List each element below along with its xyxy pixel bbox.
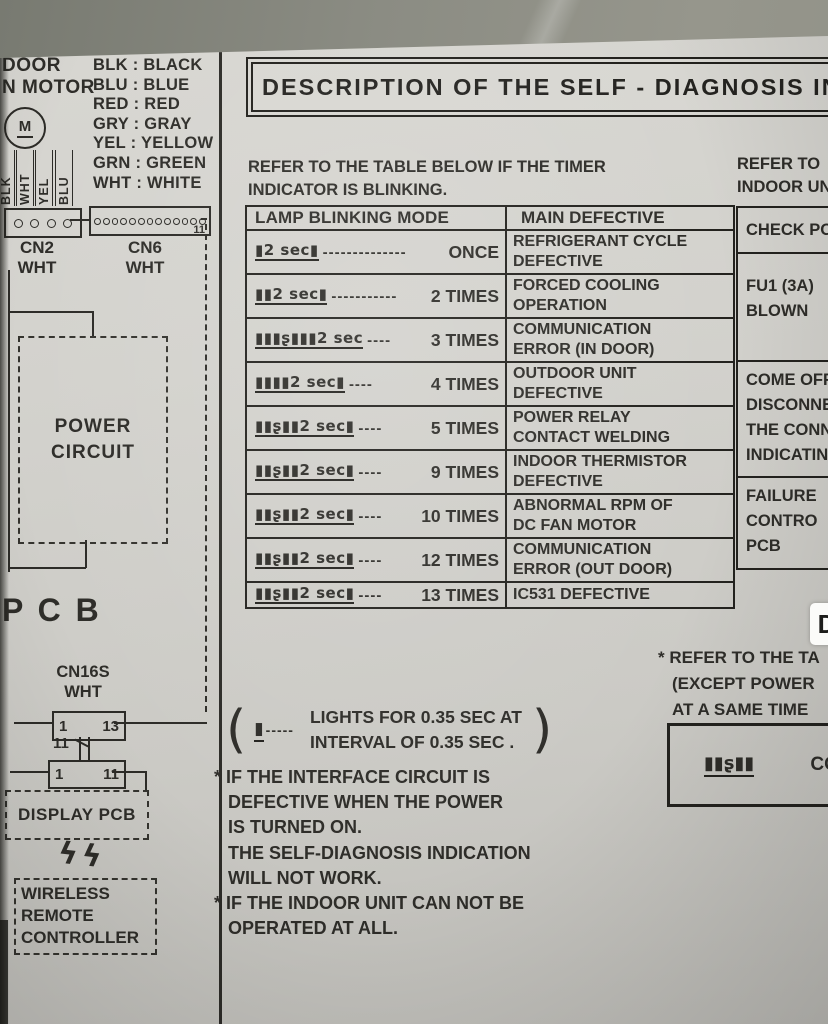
wire-line (14, 722, 52, 724)
defect-cell: COMMUNICATIONERROR (IN DOOR) (507, 319, 733, 361)
check-row: COME OFF DISCONNE THE CONN INDICATIN (738, 360, 828, 476)
cn6-connector: 11 (89, 206, 211, 236)
wire-color-legend: BLK : BLACK BLU : BLUE RED : RED GRY : G… (93, 56, 213, 193)
defect-cell: INDOOR THERMISTORDEFECTIVE (507, 451, 733, 493)
paren-open: ( (226, 698, 246, 762)
pin-11-label: 11 (53, 735, 69, 752)
note-line: IS TURNED ON. (214, 815, 531, 840)
col-header-lamp-blinking-mode: LAMP BLINKING MODE (247, 207, 507, 229)
blink-count: 4 TIMES (431, 374, 499, 395)
wire-line (201, 218, 207, 220)
connector-pin (155, 218, 162, 225)
wire-label-yel: YEL (35, 150, 53, 206)
wire-line (8, 311, 93, 313)
blink-count: 12 TIMES (421, 550, 499, 571)
defect-cell: ABNORMAL RPM OFDC FAN MOTOR (507, 495, 733, 537)
cn2-label: CN2 WHT (4, 238, 70, 278)
connector-pin (173, 218, 180, 225)
check-point-table: CHECK PO FU1 (3A) BLOWN COME OFF DISCONN… (736, 206, 828, 570)
wire-line (145, 771, 147, 792)
display-connector: 1 11 (48, 760, 126, 789)
right-footnote: * REFER TO THE TA (EXCEPT POWER AT A SAM… (658, 645, 820, 723)
table-row: ▮▮▮ʂ▮▮▮2 sec----3 TIMES COMMUNICATIONERR… (247, 317, 733, 361)
connector-pin (120, 218, 127, 225)
note-line: * IF THE INTERFACE CIRCUIT IS (214, 765, 531, 790)
blink-pattern: ▮▮▮▮2 sec▮ (255, 375, 345, 393)
connector-pin (147, 218, 154, 225)
defect-cell: FORCED COOLINGOPERATION (507, 275, 733, 317)
table-row: ▮▮2 sec▮-----------2 TIMES FORCED COOLIN… (247, 273, 733, 317)
fan-motor-label: DOOR N MOTOR (2, 55, 95, 99)
blink-count: 2 TIMES (431, 286, 499, 307)
note-line: OPERATED AT ALL. (214, 916, 531, 941)
legend-line: GRY : GRAY (93, 115, 213, 135)
wire-line (112, 771, 147, 773)
blink-symbol: ▮ (254, 719, 263, 742)
check-row: FU1 (3A) BLOWN (738, 252, 828, 360)
connector-pin (129, 218, 136, 225)
blink-count: 9 TIMES (431, 462, 499, 483)
legend-line: YEL : YELLOW (93, 134, 213, 154)
table-row: ▮▮ʂ▮▮2 sec▮----10 TIMES ABNORMAL RPM OFD… (247, 493, 733, 537)
connector-pin (138, 218, 145, 225)
overlay-badge: D (810, 603, 828, 645)
table-header-row: LAMP BLINKING MODE MAIN DEFECTIVE (247, 207, 733, 229)
wireless-signal-icon: ϟϟ (56, 836, 107, 876)
page-title: DESCRIPTION OF THE SELF - DIAGNOSIS IN (262, 74, 828, 101)
blink-pattern: ▮▮ʂ▮▮ (704, 753, 754, 777)
note-line: * IF THE INDOOR UNIT CAN NOT BE (214, 891, 531, 916)
note-line: THE SELF-DIAGNOSIS INDICATION (214, 841, 531, 866)
note-line: DEFECTIVE WHEN THE POWER (214, 790, 531, 815)
blink-count: 5 TIMES (431, 418, 499, 439)
wire-line (88, 737, 90, 761)
defect-cell: REFRIGERANT CYCLEDEFECTIVE (507, 231, 733, 273)
connector-pin (182, 218, 189, 225)
wire-label-blu: BLU (55, 150, 73, 206)
cn6-label: CN6 WHT (89, 238, 201, 278)
blink-count: 13 TIMES (421, 585, 499, 606)
blink-pattern: ▮▮ʂ▮▮2 sec▮ (255, 507, 354, 525)
wire-line (79, 737, 81, 761)
wire-line (114, 722, 207, 724)
photo-of-self-diagnosis-label: DOOR N MOTOR BLK : BLACK BLU : BLUE RED … (0, 0, 828, 1024)
footnotes: * IF THE INTERFACE CIRCUIT IS DEFECTIVE … (214, 765, 531, 941)
cn2-connector (4, 208, 82, 238)
wire-line (70, 219, 89, 221)
connector-pin (94, 218, 101, 225)
defect-cell: COMMUNICATIONERROR (OUT DOOR) (507, 539, 733, 581)
connector-pin (47, 219, 56, 228)
wire-label-wht: WHT (16, 150, 34, 206)
blink-pattern: ▮▮ʂ▮▮2 sec▮ (255, 419, 354, 437)
legend-line: RED : RED (93, 95, 213, 115)
blink-pattern: ▮2 sec▮ (255, 243, 319, 261)
blink-timing-legend: ( ▮ ----- LIGHTS FOR 0.35 SEC AT INTERVA… (226, 698, 552, 762)
legend-line: BLK : BLACK (93, 56, 213, 76)
blink-pattern: ▮▮ʂ▮▮2 sec▮ (255, 586, 354, 604)
refer-indoor-unit-text: REFER TO INDOOR UN (737, 153, 828, 199)
right-pattern-box: ▮▮ʂ▮▮ CO (667, 723, 828, 807)
table-row: ▮▮ʂ▮▮2 sec▮----12 TIMES COMMUNICATIONERR… (247, 537, 733, 581)
motor-icon: M (4, 107, 46, 149)
check-row: FAILURE CONTRO PCB (738, 476, 828, 568)
blink-pattern: ▮▮2 sec▮ (255, 287, 327, 305)
table-row: ▮▮▮▮2 sec▮----4 TIMES OUTDOOR UNITDEFECT… (247, 361, 733, 405)
wire-line (8, 567, 86, 569)
intro-text: REFER TO THE TABLE BELOW IF THE TIMER IN… (248, 156, 606, 202)
connector-pin (103, 218, 110, 225)
blink-code-table: LAMP BLINKING MODE MAIN DEFECTIVE ▮2 sec… (245, 205, 735, 609)
defect-cell: OUTDOOR UNITDEFECTIVE (507, 363, 733, 405)
paper-edge-shadow (0, 920, 8, 1024)
blink-pattern: ▮▮▮ʂ▮▮▮2 sec (255, 331, 363, 349)
table-row: ▮▮ʂ▮▮2 sec▮----9 TIMES INDOOR THERMISTOR… (247, 449, 733, 493)
legend-line: GRN : GREEN (93, 154, 213, 174)
paren-close: ) (532, 698, 552, 762)
legend-line: WHT : WHITE (93, 174, 213, 194)
table-row: ▮2 sec▮--------------ONCE REFRIGERANT CY… (247, 229, 733, 273)
blink-count: ONCE (448, 242, 499, 263)
defect-cell: POWER RELAYCONTACT WELDING (507, 407, 733, 449)
cn16s-label: CN16S WHT (48, 662, 118, 702)
blink-pattern: ▮▮ʂ▮▮2 sec▮ (255, 463, 354, 481)
connector-pin (14, 219, 23, 228)
note-line: WILL NOT WORK. (214, 866, 531, 891)
blink-count: 3 TIMES (431, 330, 499, 351)
label-paper: DOOR N MOTOR BLK : BLACK BLU : BLUE RED … (0, 0, 828, 1024)
title-box: DESCRIPTION OF THE SELF - DIAGNOSIS IN (246, 57, 828, 117)
power-circuit-box: POWER CIRCUIT (18, 336, 168, 544)
legend-line: BLU : BLUE (93, 76, 213, 96)
defect-cell: IC531 DEFECTIVE (507, 583, 733, 607)
connector-pin (164, 218, 171, 225)
connector-pin (112, 218, 119, 225)
connector-pin (30, 219, 39, 228)
display-pcb-box: DISPLAY PCB (5, 790, 149, 840)
pcb-label: P C B (2, 592, 102, 629)
blink-pattern: ▮▮ʂ▮▮2 sec▮ (255, 551, 354, 569)
table-row: ▮▮ʂ▮▮2 sec▮----5 TIMES POWER RELAYCONTAC… (247, 405, 733, 449)
check-header: CHECK PO (738, 208, 828, 252)
cn6-pin-number: 11 (193, 224, 205, 236)
blink-count: 10 TIMES (421, 506, 499, 527)
pcb-boundary-line (205, 224, 207, 712)
col-header-main-defective: MAIN DEFECTIVE (507, 207, 733, 229)
wire-line (92, 311, 94, 336)
wireless-remote-controller-box: WIRELESS REMOTE CONTROLLER (14, 878, 157, 955)
paper-edge-shadow (0, 40, 9, 1024)
wire-line (85, 540, 87, 568)
table-row: ▮▮ʂ▮▮2 sec▮----13 TIMES IC531 DEFECTIVE (247, 581, 733, 607)
wire-line (10, 771, 48, 773)
